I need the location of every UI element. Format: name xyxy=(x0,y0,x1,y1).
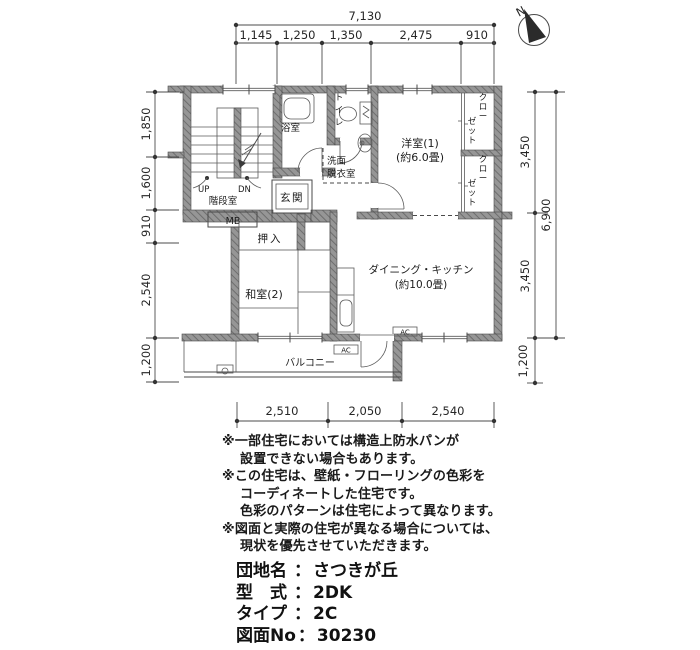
property-label: 図面No xyxy=(236,626,296,648)
genkan-label: 玄関 xyxy=(280,191,304,204)
dim-right-balcony: 1,200 xyxy=(516,345,530,378)
stair-up-label: UP xyxy=(198,185,209,195)
property-separator: ： xyxy=(294,583,311,605)
dim-left-4: 2,540 xyxy=(139,274,153,307)
property-row-number: 図面No：30230 xyxy=(236,626,398,648)
dimension-bottom: 2,510 2,050 2,540 xyxy=(235,402,496,428)
note-line-7: 現状を優先させていただきます。 xyxy=(222,538,522,556)
dimension-top: 7,130 1,145 1,250 1,350 2,475 910 xyxy=(234,9,496,84)
property-label: 団地名 xyxy=(236,561,292,583)
dim-top-5: 910 xyxy=(466,28,488,42)
property-separator: ： xyxy=(294,561,311,583)
dim-top-4: 2,475 xyxy=(400,28,433,42)
dim-right-total: 6,900 xyxy=(539,199,553,232)
dim-left-2: 1,600 xyxy=(139,167,153,200)
dim-top-2: 1,250 xyxy=(283,28,316,42)
bath-label: 浴室 xyxy=(281,122,300,134)
washroom-label-2: 脱衣室 xyxy=(327,168,356,180)
dim-right-2: 3,450 xyxy=(518,260,532,293)
stairwell-label: 階段室 xyxy=(209,195,238,207)
western-room: 洋室(1) (約6.0畳) xyxy=(371,136,458,219)
dim-top-1: 1,145 xyxy=(240,28,273,42)
japanese-room: 押入 和室(2) xyxy=(239,222,330,334)
stair-dn-label: DN xyxy=(238,185,251,195)
property-label: 型 式 xyxy=(236,583,292,605)
closet2-label-col1: クロー xyxy=(479,155,488,184)
property-row-name: 団地名：さつきが丘 xyxy=(236,561,398,583)
compass-north: N xyxy=(514,3,550,45)
dining-kitchen: ダイニング・キッチン (約10.0畳) AC xyxy=(337,263,474,337)
dim-left-3: 910 xyxy=(139,215,153,237)
property-separator: ： xyxy=(294,604,311,626)
western-room-size: (約6.0畳) xyxy=(396,150,444,164)
note-line-6: ※図面と実際の住宅が異なる場合については、 xyxy=(222,521,522,539)
note-line-2: 設置できない場合もあります。 xyxy=(222,451,522,469)
note-line-1: ※一部住宅においては構造上防水パンが xyxy=(222,433,522,451)
western-room-label: 洋室(1) xyxy=(401,136,439,150)
dim-bottom-1: 2,510 xyxy=(266,404,299,418)
property-value: さつきが丘 xyxy=(313,561,398,581)
closet2-label-col2: ゼット xyxy=(468,178,477,208)
note-line-3: ※この住宅は、壁紙・フローリングの色彩を xyxy=(222,468,522,486)
dim-top-total: 7,130 xyxy=(349,9,382,23)
toilet-room: トイレ xyxy=(335,93,372,163)
note-line-5: 色彩のパターンは住宅によって異なります。 xyxy=(222,503,522,521)
ac-slot-1: AC xyxy=(400,329,410,337)
dimension-right: 3,450 3,450 6,900 1,200 xyxy=(516,90,565,385)
dk-label: ダイニング・キッチン xyxy=(369,263,474,276)
dimension-left: 1,850 1,600 910 2,540 1,200 xyxy=(139,90,179,384)
property-row-plan: タイプ：2C xyxy=(236,604,398,626)
meter-box-label: MB xyxy=(226,216,241,227)
toilet-label: トイレ xyxy=(335,93,344,128)
property-value: 2C xyxy=(313,604,337,624)
dim-right-1: 3,450 xyxy=(518,136,532,169)
dim-left-1: 1,850 xyxy=(139,108,153,141)
property-value: 2DK xyxy=(313,583,352,603)
dim-bottom-3: 2,540 xyxy=(432,404,465,418)
ac-slot-2: AC xyxy=(341,347,351,355)
dim-bottom-2: 2,050 xyxy=(349,404,382,418)
japanese-room-label: 和室(2) xyxy=(245,287,283,301)
property-value: 30230 xyxy=(317,626,376,646)
stairwell: UP DN 階段室 xyxy=(191,108,273,207)
oshiire-label: 押入 xyxy=(258,232,283,245)
dim-top-3: 1,350 xyxy=(330,28,363,42)
notes-block: ※一部住宅においては構造上防水パンが 設置できない場合もあります。 ※この住宅は… xyxy=(222,433,522,556)
dk-size: (約10.0畳) xyxy=(395,278,448,291)
dim-left-5: 1,200 xyxy=(139,344,153,377)
closet1-label-col2: ゼット xyxy=(468,116,477,146)
bathroom: 浴室 xyxy=(280,94,322,176)
floorplan-page: N xyxy=(0,0,700,650)
floor-plan: N xyxy=(0,0,700,430)
property-info: 団地名：さつきが丘 型 式：2DK タイプ：2C 図面No：30230 xyxy=(236,561,398,647)
note-line-4: コーディネートした住宅です。 xyxy=(222,486,522,504)
property-row-type: 型 式：2DK xyxy=(236,583,398,605)
property-label: タイプ xyxy=(236,604,292,626)
washroom-label-1: 洗面 xyxy=(327,155,346,167)
closet1-label-col1: クロー xyxy=(479,93,488,122)
balcony-label: バルコニー xyxy=(285,357,335,369)
property-separator: ： xyxy=(298,626,315,648)
